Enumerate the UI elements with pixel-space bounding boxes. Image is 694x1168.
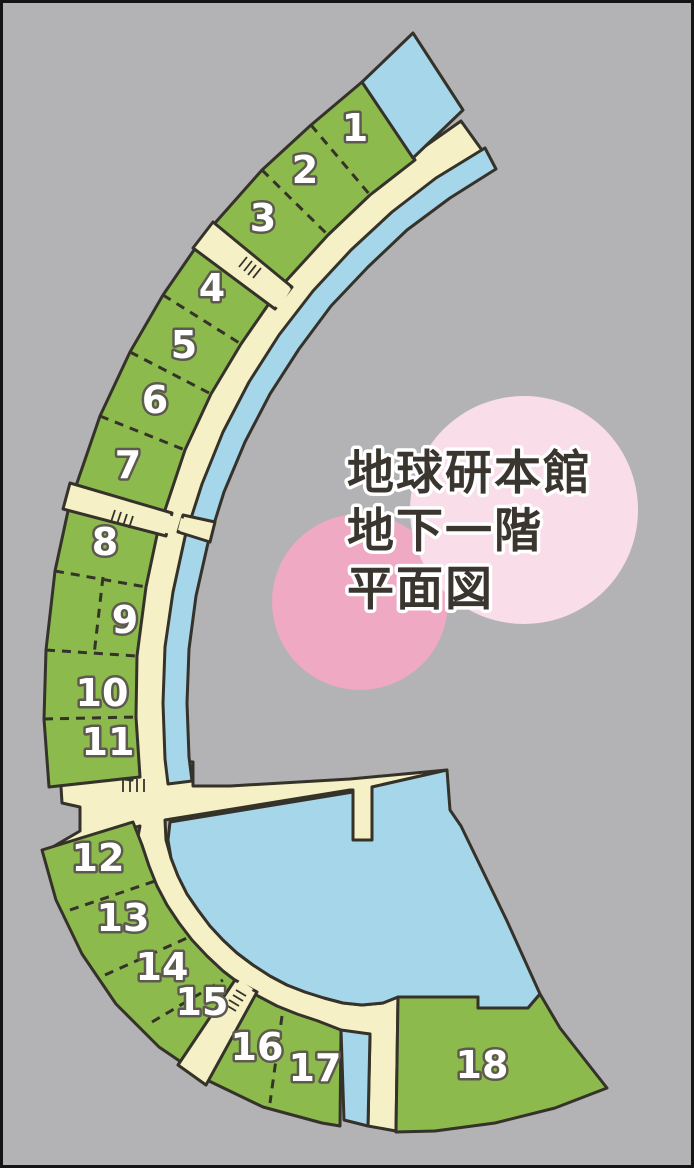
room-label-10: 10 <box>76 671 129 715</box>
room-label-1: 1 <box>342 106 368 150</box>
floor-plan-map: 123456789101112131415161718 地球研本館 地下一階 平… <box>0 0 694 1168</box>
room-label-9: 9 <box>112 598 138 642</box>
room-label-18: 18 <box>456 1043 509 1087</box>
room-label-11: 11 <box>82 720 135 764</box>
room-label-5: 5 <box>171 323 197 367</box>
room-label-2: 2 <box>292 148 318 192</box>
room-label-4: 4 <box>199 266 225 310</box>
room-label-6: 6 <box>142 378 168 422</box>
room-label-8: 8 <box>92 520 118 564</box>
room-label-17: 17 <box>289 1046 342 1090</box>
title-line-2: 地下一階 <box>347 504 543 559</box>
floor-plan-page: 123456789101112131415161718 地球研本館 地下一階 平… <box>0 0 694 1168</box>
room-label-16: 16 <box>231 1025 284 1069</box>
room-label-12: 12 <box>72 836 125 880</box>
room-label-7: 7 <box>115 443 141 487</box>
room-label-13: 13 <box>97 896 150 940</box>
title-line-3: 平面図 <box>347 562 494 617</box>
title-line-1: 地球研本館 <box>347 446 592 501</box>
room-label-3: 3 <box>250 196 276 240</box>
lightwell-strip-lower <box>341 1030 370 1126</box>
room-label-15: 15 <box>176 980 229 1024</box>
